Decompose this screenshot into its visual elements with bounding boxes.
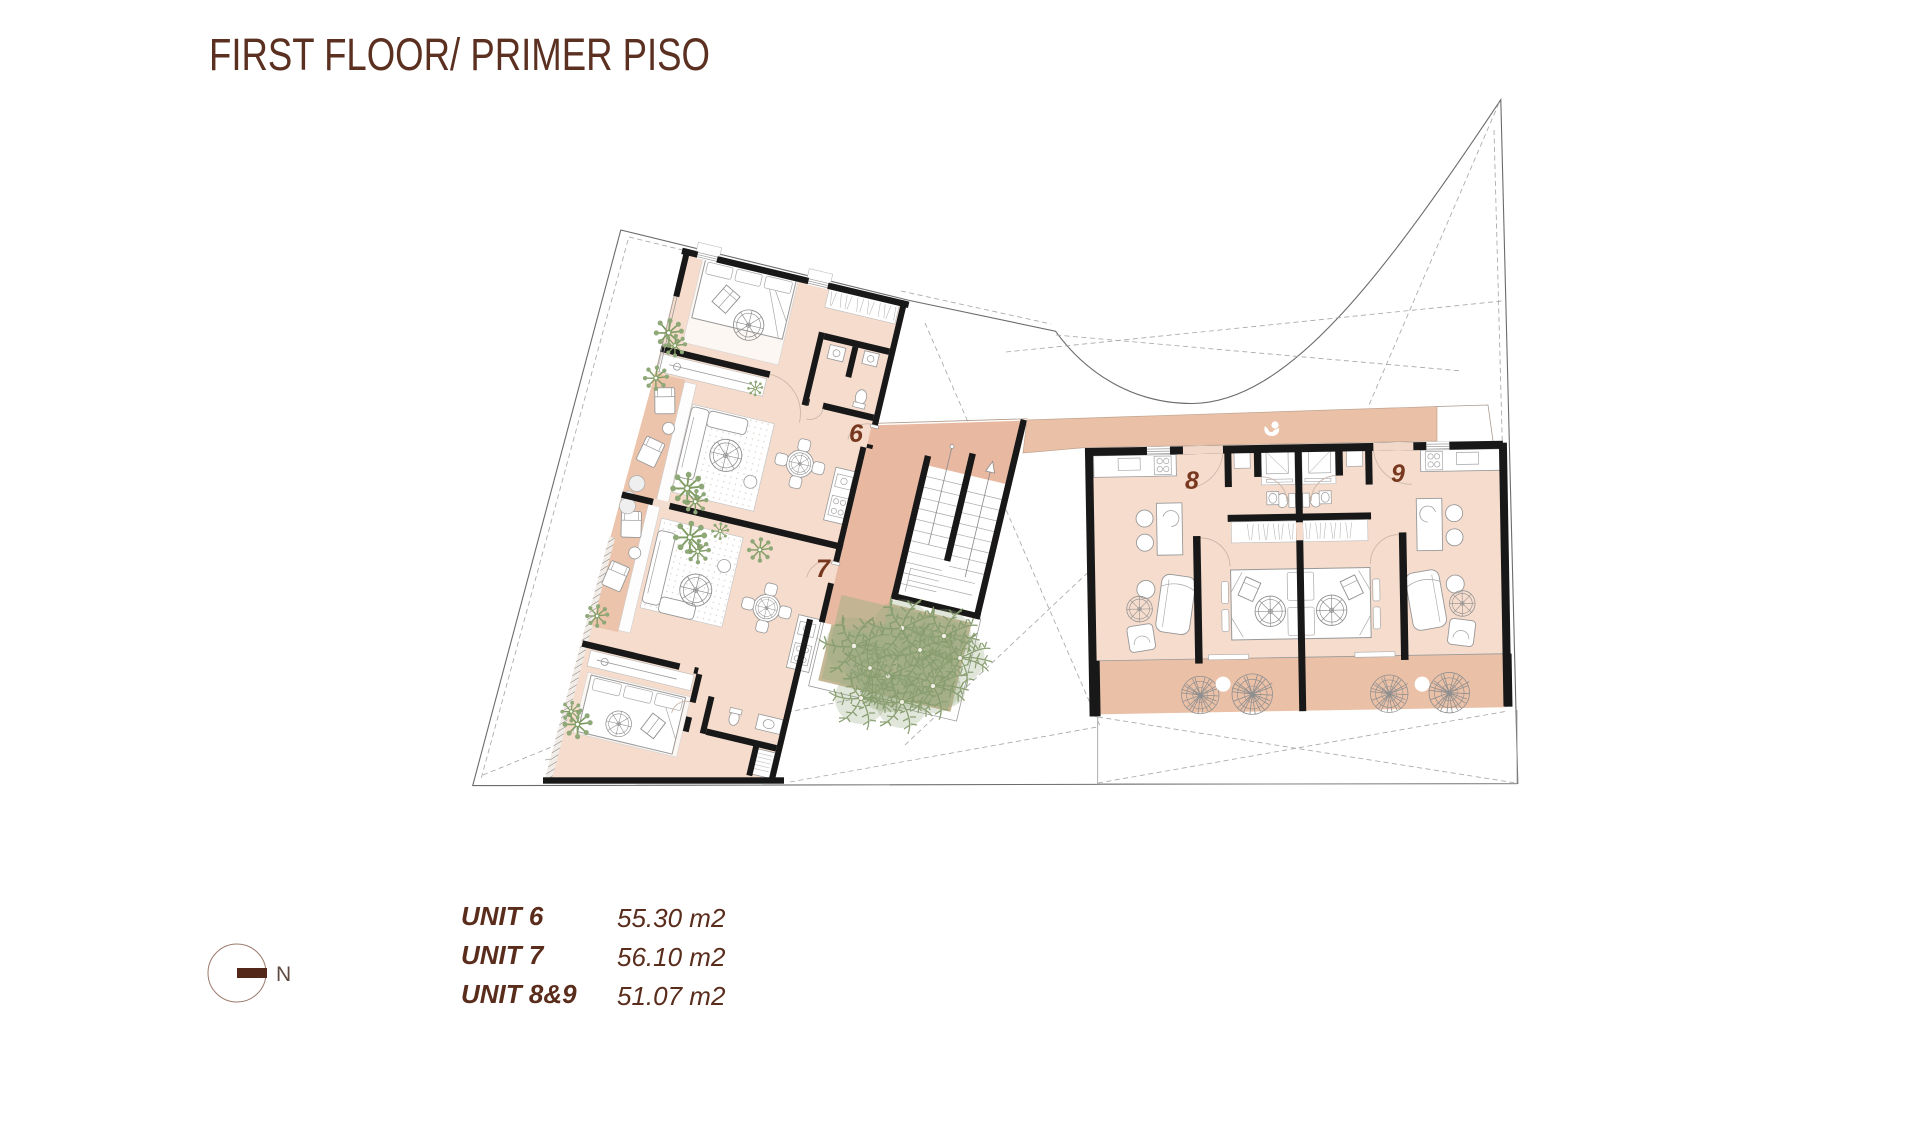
svg-text:UNIT 6: UNIT 6 bbox=[461, 901, 544, 931]
svg-text:UNIT 7: UNIT 7 bbox=[461, 940, 545, 970]
svg-text:56.10 m2: 56.10 m2 bbox=[617, 942, 726, 972]
svg-text:FIRST FLOOR/ PRIMER PISO: FIRST FLOOR/ PRIMER PISO bbox=[209, 29, 710, 80]
svg-text:7: 7 bbox=[816, 555, 831, 583]
svg-text:6: 6 bbox=[849, 420, 864, 448]
svg-text:8: 8 bbox=[1185, 467, 1199, 495]
svg-text:55.30 m2: 55.30 m2 bbox=[617, 903, 726, 933]
svg-text:UNIT 8&9: UNIT 8&9 bbox=[461, 979, 577, 1009]
svg-text:N: N bbox=[276, 963, 291, 986]
svg-text:9: 9 bbox=[1391, 460, 1405, 488]
svg-text:51.07 m2: 51.07 m2 bbox=[617, 981, 726, 1011]
